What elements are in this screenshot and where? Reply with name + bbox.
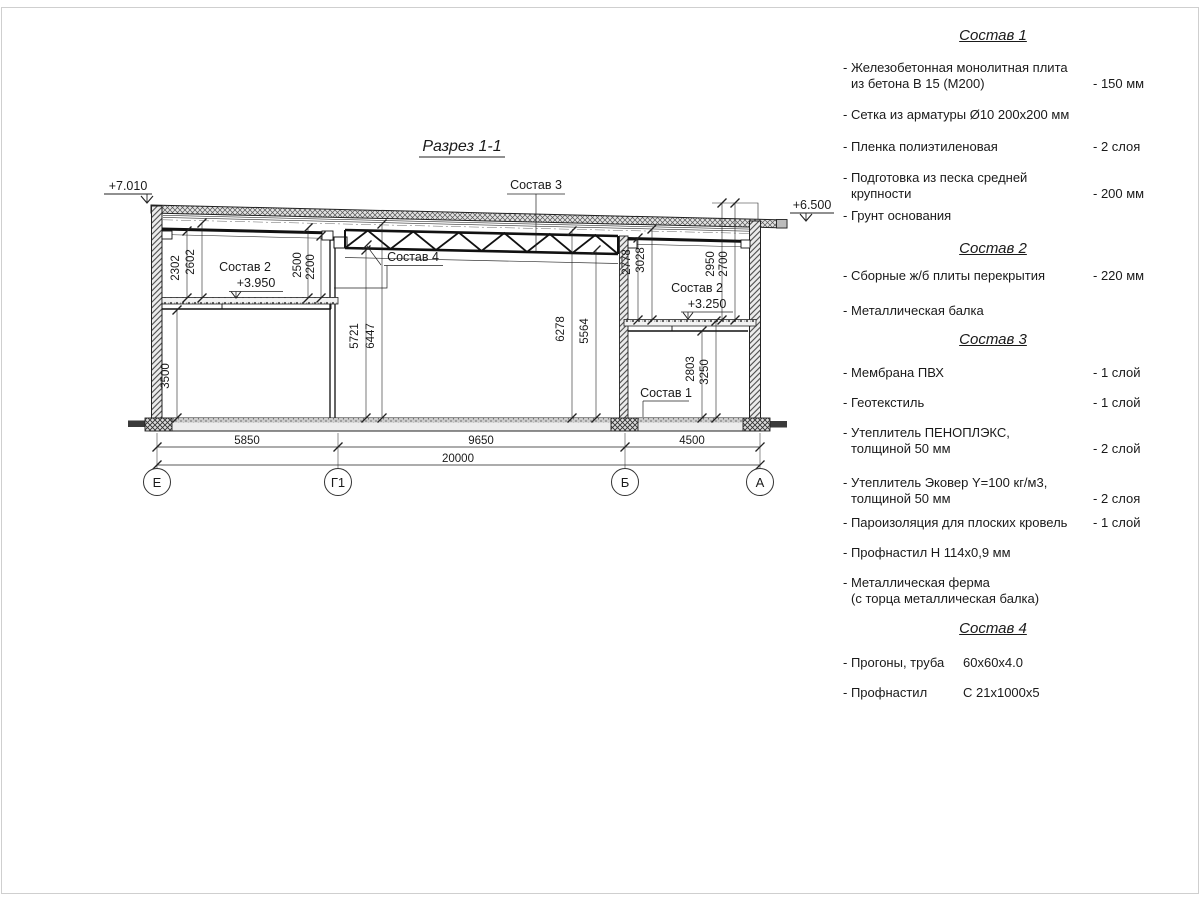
- axis-label-b: Б: [621, 475, 630, 490]
- roof-truss: [345, 230, 618, 264]
- legend-item: - Сетка из арматуры Ø10 200х200 мм: [843, 107, 1143, 123]
- legend-item-text: - Металлическая балка: [843, 303, 1143, 319]
- dim-2700: 2700: [718, 251, 730, 277]
- legend-item-text: - Утеплитель ПЕНОПЛЭКС,: [843, 425, 1143, 441]
- dim-9650: 9650: [468, 435, 494, 447]
- elevation-mark-6500: +6.500: [790, 198, 834, 221]
- dim-3028: 3028: [635, 247, 647, 273]
- legend-item-value: - 150 мм: [1093, 76, 1144, 92]
- legend-item-value: - 2 слоя: [1093, 139, 1140, 155]
- legend-item: - Подготовка из песка средней крупности …: [843, 170, 1143, 202]
- legend-item: - Железобетонная монолитная плита из бет…: [843, 60, 1143, 92]
- callout-label: Состав 1: [640, 386, 692, 400]
- legend-title-sostav1: Состав 1: [843, 27, 1143, 44]
- dim-2602: 2602: [185, 249, 197, 275]
- legend-item-text: - Грунт основания: [843, 208, 1143, 224]
- legend-item-value: - 2 слоя: [1093, 491, 1140, 507]
- legend-item-value: - 1 слой: [1093, 395, 1141, 411]
- bottom-dimensions: 5850 9650 4500 20000: [153, 433, 765, 470]
- callout-label: Состав 3: [510, 178, 562, 192]
- legend-title-sostav4: Состав 4: [843, 620, 1143, 637]
- legend-item: - Сборные ж/б плиты перекрытия - 220 мм: [843, 268, 1143, 284]
- callout-sostav2-left: Состав 2 +3.950: [219, 260, 283, 298]
- callout-label: Состав 2: [219, 260, 271, 274]
- axis-label-g1: Г1: [331, 475, 345, 490]
- legend-item-text: - Профнастил Н 114х0,9 мм: [843, 545, 1143, 561]
- callout-sostav2-right: Состав 2 +3.250: [671, 281, 733, 319]
- legend-item: - Грунт основания: [843, 208, 1143, 224]
- legend-item-value: - 220 мм: [1093, 268, 1144, 284]
- legend-item-text: - Металлическая ферма: [843, 575, 1143, 591]
- legend-item-value: - 1 слой: [1093, 365, 1141, 381]
- floor-slab-right-bay: [624, 320, 756, 332]
- axis-label-a: А: [756, 475, 765, 490]
- mezzanine-slab-left: [162, 298, 338, 310]
- dim-2778: 2778: [621, 249, 633, 275]
- dim-6447: 6447: [365, 323, 377, 349]
- legend-item-value: 60х60х4.0: [963, 655, 1023, 671]
- legend-title-sostav2: Состав 2: [843, 240, 1143, 257]
- legend-item-text: - Сетка из арматуры Ø10 200х200 мм: [843, 107, 1143, 123]
- legend-item-value: - 1 слой: [1093, 515, 1141, 531]
- dim-3500: 3500: [160, 363, 172, 389]
- dim-5564: 5564: [579, 318, 591, 344]
- legend-item: - Мембрана ПВХ - 1 слой: [843, 365, 1143, 381]
- legend-item: - Профнастил С 21х1000х5: [843, 685, 1143, 701]
- legend-item: - Металлическая балка: [843, 303, 1143, 319]
- right-bay-ceiling: [628, 239, 750, 249]
- callout-label: Состав 4: [387, 250, 439, 264]
- legend-item-text: - Утеплитель Эковер Y=100 кг/м3,: [843, 475, 1143, 491]
- dim-2950: 2950: [705, 251, 717, 277]
- legend-item: - Геотекстиль - 1 слой: [843, 395, 1143, 411]
- axis-bubbles: Е Г1 Б А: [144, 469, 774, 496]
- legend-item: - Пароизоляция для плоских кровель - 1 с…: [843, 515, 1143, 531]
- dim-2500: 2500: [292, 252, 304, 278]
- legend-item-value: - 2 слой: [1093, 441, 1141, 457]
- dim-5721: 5721: [349, 323, 361, 349]
- legend-item: - Профнастил Н 114х0,9 мм: [843, 545, 1143, 561]
- column-g1: [330, 237, 347, 419]
- roof-assembly: [151, 205, 787, 233]
- legend-item-text: - Железобетонная монолитная плита: [843, 60, 1143, 76]
- callout-label: Состав 2: [671, 281, 723, 295]
- legend-title-sostav3: Состав 3: [843, 331, 1143, 348]
- drawing-sheet: Разрез 1-1 +7.010 +6.500 Состав 3 Состав…: [0, 0, 1200, 900]
- legend-item-value: - 200 мм: [1093, 186, 1144, 202]
- dim-5850: 5850: [234, 435, 260, 447]
- legend-item-text: - Подготовка из песка средней: [843, 170, 1143, 186]
- drawing-title: Разрез 1-1: [422, 138, 501, 155]
- legend-item: - Пленка полиэтиленовая - 2 слоя: [843, 139, 1143, 155]
- dim-20000: 20000: [442, 453, 474, 465]
- ground-floor-slab: [128, 418, 787, 431]
- legend-item: - Металлическая ферма (с торца металличе…: [843, 575, 1143, 607]
- legend-item: - Утеплитель ПЕНОПЛЭКС, толщиной 50 мм -…: [843, 425, 1143, 457]
- level-value: +3.950: [237, 276, 276, 290]
- level-value: +3.250: [688, 297, 727, 311]
- elevation-mark-7010: +7.010: [104, 179, 153, 203]
- dim-2803: 2803: [685, 356, 697, 382]
- legend-item-value: С 21х1000х5: [963, 685, 1040, 701]
- axis-label-e: Е: [153, 475, 162, 490]
- elevation-value: +7.010: [109, 179, 148, 193]
- elevation-value: +6.500: [793, 198, 832, 212]
- dim-2200: 2200: [305, 254, 317, 280]
- dim-2302: 2302: [170, 255, 182, 281]
- dim-3250: 3250: [699, 359, 711, 385]
- dim-4500: 4500: [679, 435, 705, 447]
- callout-sostav1: Состав 1: [640, 386, 692, 417]
- legend-panel: Состав 1 - Железобетонная монолитная пли…: [843, 0, 1143, 701]
- legend-item-text: (с торца металлическая балка): [843, 591, 1143, 607]
- dim-6278: 6278: [555, 316, 567, 342]
- legend-item: - Утеплитель Эковер Y=100 кг/м3, толщино…: [843, 475, 1143, 507]
- legend-item: - Прогоны, труба 60х60х4.0: [843, 655, 1143, 671]
